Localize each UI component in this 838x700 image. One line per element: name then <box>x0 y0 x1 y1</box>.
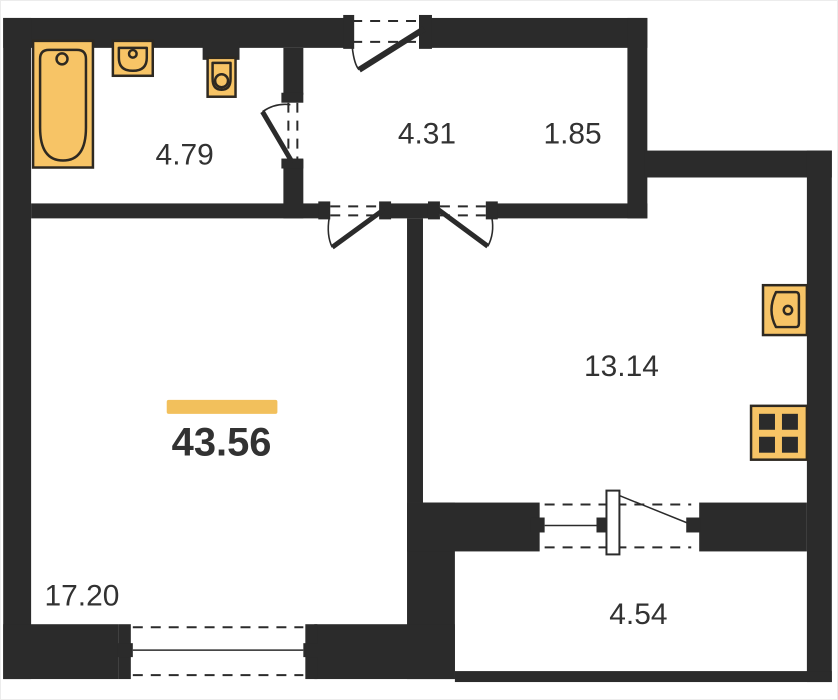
floor-plan-drawing: 4.79 4.31 1.85 13.14 17.20 4.54 43.56 <box>1 1 837 699</box>
stove-burner-4 <box>782 437 798 453</box>
bathroom-door-leaf <box>262 112 292 163</box>
room-label-balcony: 4.54 <box>609 598 667 631</box>
living-room-door <box>318 201 391 247</box>
wall-bathroom-divider-upper <box>283 48 303 95</box>
wall-kitchen-balcony-left <box>407 503 540 552</box>
bathroom-door-jamb-top <box>281 93 303 103</box>
wall-top <box>3 18 647 48</box>
bathroom-door <box>262 93 303 169</box>
balcony-door-hinge <box>686 518 700 533</box>
balcony-window-endpoint-left <box>531 518 545 533</box>
room-labels: 4.79 4.31 1.85 13.14 17.20 4.54 <box>45 118 668 632</box>
room-label-storage: 1.85 <box>543 118 601 151</box>
room-label-living-room: 17.20 <box>45 579 120 612</box>
kitchen-door <box>428 201 498 246</box>
wall-balcony-bottom <box>455 671 832 682</box>
total-area-accent-bar <box>167 400 278 414</box>
bathroom-door-arc <box>262 104 290 111</box>
bathroom-door-dashes <box>288 103 297 160</box>
balcony-door-leaf <box>619 496 691 525</box>
balcony-door-frame <box>606 491 619 555</box>
wall-middle-thin <box>407 218 423 502</box>
kitchen-door-arc <box>488 217 493 246</box>
wall-bottom-mid <box>314 624 455 679</box>
window-endpoint-left <box>118 643 133 657</box>
bathroom-sink-icon <box>113 41 153 76</box>
stove-burner-1 <box>759 414 775 430</box>
window-dashes <box>133 627 304 675</box>
wall-storage-right <box>627 18 647 218</box>
wall-kitchen-balcony-right <box>699 503 807 552</box>
entrance-door-arc <box>352 47 359 70</box>
wall-left <box>3 18 31 679</box>
wall-kitchen-top <box>644 151 831 178</box>
balcony-door-window <box>531 491 701 555</box>
wall-hall-bottom-a <box>31 203 322 218</box>
living-door-jamb-left <box>318 201 330 219</box>
wall-bottom-left <box>3 624 119 679</box>
wall-hall-bottom-b <box>388 203 432 218</box>
room-label-bathroom: 4.79 <box>156 139 214 172</box>
room-label-kitchen: 13.14 <box>584 350 659 383</box>
wall-hall-bottom-c <box>497 203 648 218</box>
stove-burner-3 <box>759 437 775 453</box>
room-label-hallway: 4.31 <box>398 118 456 151</box>
entrance-jamb-left <box>343 15 354 49</box>
floor-plan: 4.79 4.31 1.85 13.14 17.20 4.54 43.56 <box>0 0 838 700</box>
total-area: 43.56 <box>167 400 278 465</box>
stove-burner-2 <box>782 414 798 430</box>
bathtub-outline <box>33 41 93 168</box>
wall-right <box>807 151 832 682</box>
stove-icon <box>751 406 807 460</box>
kitchen-door-jamb-right <box>486 201 498 219</box>
total-area-label: 43.56 <box>172 421 272 465</box>
living-room-window <box>118 624 318 679</box>
kitchen-sink-icon <box>763 285 807 335</box>
window-endpoint-right <box>303 643 318 657</box>
living-door-dashes <box>330 206 380 215</box>
living-door-arc <box>328 217 332 247</box>
bathtub-icon <box>33 41 93 168</box>
toilet-icon <box>203 41 240 97</box>
entrance-door <box>343 15 432 70</box>
